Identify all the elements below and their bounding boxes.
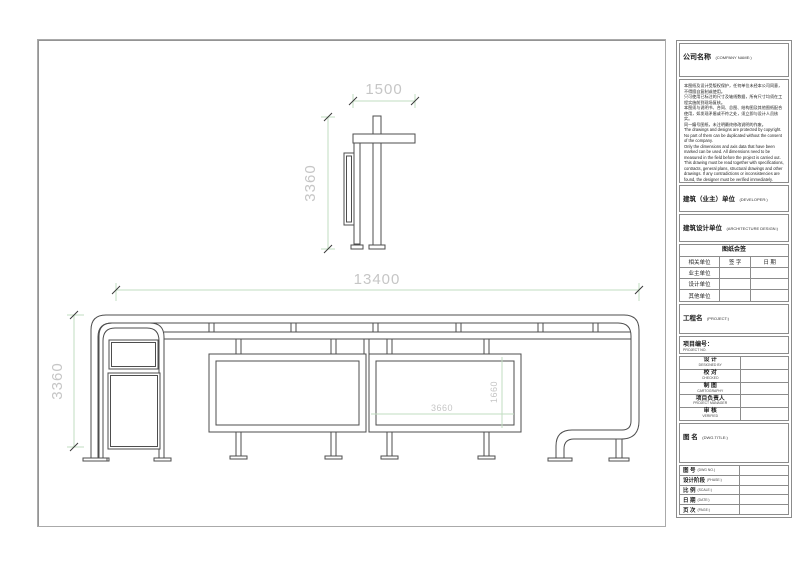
side-ad-panel (344, 153, 354, 225)
sheet-info-label: 比 例 (SCALE:) (680, 486, 740, 495)
cs-header-sign: 签 字 (720, 257, 751, 268)
panel-width-dim: 3660 (431, 403, 453, 413)
design-unit-box: 建筑设计单位 (ARCHITECTURE DESIGN:) (679, 214, 789, 242)
sheet-info-label: 日 期 (DATE:) (680, 495, 740, 504)
personnel-value (741, 357, 788, 369)
personnel-value (741, 395, 788, 407)
cs-cell-empty (751, 279, 788, 290)
cs-row-design: 设计单位 (680, 279, 720, 290)
developer-zh: 建筑（业主）单位 (683, 196, 735, 203)
personnel-row-designer: 设 计 DESIGNED BY (680, 357, 788, 370)
cs-cell-empty (720, 290, 751, 301)
title-block: 公司名称 (COMPANY NAME:) 本图纸及设计受版权保护，任何单位未经本… (676, 40, 792, 518)
sheet-info-zh: 日 期 (683, 496, 696, 504)
cad-sheet: { "drawing": { "side_view": { "width_mm"… (0, 0, 800, 566)
sheet-info-en: (DATE:) (698, 498, 710, 502)
project-name-en: (PROJECT:) (707, 316, 729, 321)
sheet-info-label: 图 号 (DWG NO.) (680, 466, 740, 475)
sheet-info-value (740, 486, 788, 495)
side-post-foot (351, 245, 363, 249)
drawing-frame: 1500 3360 13400 (37, 39, 666, 527)
row-phase: 设计阶段 (PHASE:) (680, 476, 788, 486)
cs-row-owner: 业主单位 (680, 268, 720, 279)
design-unit-en: (ARCHITECTURE DESIGN:) (726, 226, 778, 231)
sheet-info-zh: 比 例 (683, 486, 696, 494)
sheet-info-zh: 页 次 (683, 506, 696, 514)
sign-box-top-panel (109, 340, 158, 369)
rail-connectors (209, 323, 598, 332)
cs-cell-empty (720, 268, 751, 279)
project-no-en: PROJECT NO. (683, 348, 785, 352)
personnel-row-draftsman: 制 图 CARTOGRAPHY (680, 383, 788, 396)
sheet-info-zh: 图 号 (683, 466, 696, 474)
dwg-title-en: (DWG.TITLE:) (702, 435, 728, 440)
notes-box: 本图纸及设计受版权保护，任何单位未经本公司同意，不得擅自复制或使用。 只可使用已… (679, 79, 789, 183)
sheet-info-en: (PHASE:) (707, 478, 722, 482)
developer-en: (DEVELOPER:) (739, 197, 767, 202)
countersign-table: 相关单位 签 字 日 期 业主单位 设计单位 其他单位 (680, 257, 788, 301)
elevation-view: 13400 3360 (49, 271, 643, 461)
notes-en: The drawings and designs are protected b… (684, 127, 784, 183)
sheet-info-value (740, 495, 788, 504)
elevation-height-dim: 3360 (49, 362, 66, 399)
panel-legs (230, 432, 495, 459)
personnel-row-verifier: 审 核 VERIFIED (680, 408, 788, 420)
personnel-table: 设 计 DESIGNED BY 校 对 CHECKED 制 图 CARTOGRA… (679, 356, 789, 421)
project-name-box: 工程名 (PROJECT:) (679, 304, 789, 334)
sheet-info-label: 页 次 (PAGE:) (680, 505, 740, 514)
sheet-info-en: (DWG NO.) (698, 468, 716, 472)
panel-hangers (236, 339, 489, 354)
personnel-value (741, 370, 788, 382)
project-no-zh: 项目编号： (683, 339, 785, 348)
company-name-en: (COMPANY NAME:) (715, 55, 751, 60)
countersign-title: 图纸会签 (680, 245, 788, 257)
personnel-label: 项目负责人 PROJECT MANAGER (680, 395, 741, 407)
bus-shelter-drawing: 1500 3360 13400 (38, 40, 665, 526)
personnel-row-manager: 项目负责人 PROJECT MANAGER (680, 395, 788, 408)
sheet-info-label: 设计阶段 (PHASE:) (680, 476, 740, 485)
sheet-info-table: 图 号 (DWG NO.) 设计阶段 (PHASE:) 比 例 (SCALE:)… (679, 465, 789, 515)
cs-header-unit: 相关单位 (680, 257, 720, 268)
personnel-en: CHECKED (702, 377, 719, 380)
countersign-box: 图纸会签 相关单位 签 字 日 期 业主单位 设计单位 其他单位 (679, 244, 789, 302)
side-height-dim: 3360 (302, 164, 319, 201)
personnel-value (741, 383, 788, 395)
dwg-title-box: 图 名 (DWG.TITLE:) (679, 423, 789, 463)
personnel-en: DESIGNED BY (699, 364, 722, 367)
personnel-en: CARTOGRAPHY (697, 390, 723, 393)
side-panel-post (354, 143, 360, 244)
cs-row-other: 其他单位 (680, 290, 720, 301)
left-sign-box (92, 323, 171, 461)
cs-header-date: 日 期 (751, 257, 788, 268)
personnel-label: 校 对 CHECKED (680, 370, 741, 382)
elevation-width-dim: 13400 (354, 271, 401, 288)
personnel-label: 审 核 VERIFIED (680, 408, 741, 420)
design-unit-zh: 建筑设计单位 (683, 225, 722, 232)
personnel-label: 制 图 CARTOGRAPHY (680, 383, 741, 395)
row-dwg-no: 图 号 (DWG NO.) (680, 466, 788, 476)
sheet-info-en: (PAGE:) (698, 508, 710, 512)
project-name-zh: 工程名 (683, 315, 703, 322)
personnel-value (741, 408, 788, 420)
side-view: 1500 3360 (302, 81, 419, 253)
project-no-box: 项目编号： PROJECT NO. (679, 336, 789, 354)
notes-zh: 本图纸及设计受版权保护，任何单位未经本公司同意，不得擅自复制或使用。 只可使用已… (684, 83, 784, 127)
company-name-zh: 公司名称 (683, 54, 711, 61)
panel-height-dim: 1660 (489, 381, 499, 403)
sheet-info-zh: 设计阶段 (683, 476, 705, 484)
personnel-row-checker: 校 对 CHECKED (680, 370, 788, 383)
cs-cell-empty (751, 268, 788, 279)
cs-cell-empty (720, 279, 751, 290)
side-width-dim: 1500 (365, 81, 402, 98)
sheet-info-value (740, 466, 788, 475)
personnel-en: VERIFIED (702, 415, 718, 418)
cs-cell-empty (751, 290, 788, 301)
sheet-info-en: (SCALE:) (698, 488, 712, 492)
row-date: 日 期 (DATE:) (680, 495, 788, 505)
sign-box-bottom-panel (108, 373, 160, 449)
ad-panel-left (209, 354, 366, 432)
side-roof-beam (353, 134, 415, 143)
sheet-info-value (740, 505, 788, 514)
personnel-en: PROJECT MANAGER (693, 402, 727, 405)
sheet-info-value (740, 476, 788, 485)
company-name-box: 公司名称 (COMPANY NAME:) (679, 43, 789, 77)
developer-box: 建筑（业主）单位 (DEVELOPER:) (679, 185, 789, 212)
dwg-title-zh: 图 名 (683, 434, 698, 441)
side-column-foot (369, 245, 385, 249)
row-scale: 比 例 (SCALE:) (680, 486, 788, 496)
personnel-label: 设 计 DESIGNED BY (680, 357, 741, 369)
row-page: 页 次 (PAGE:) (680, 505, 788, 514)
